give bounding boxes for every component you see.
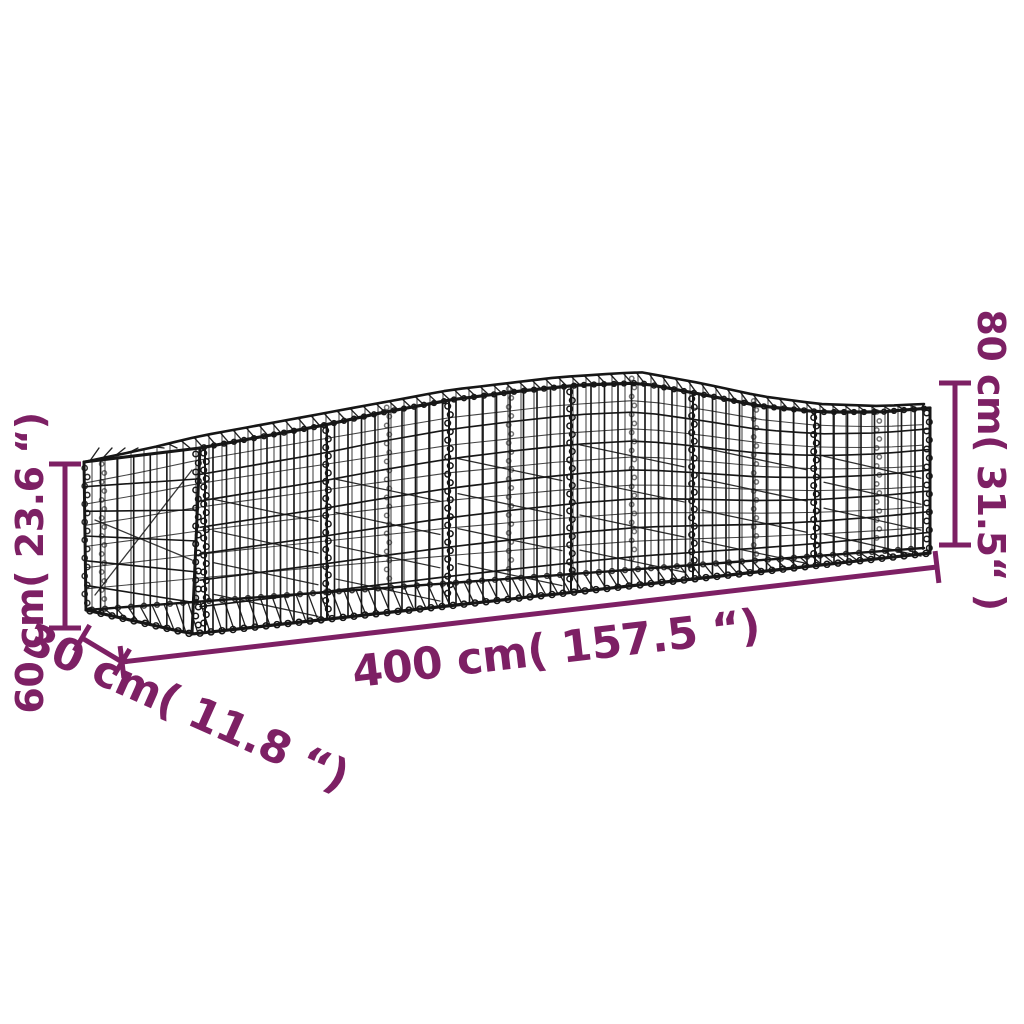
gabion-basket-wireframe xyxy=(82,372,932,636)
dimension-line-height-right xyxy=(939,383,971,545)
height-right-dimension-label: 80 cm( 31.5“ ) xyxy=(969,309,1013,610)
dimension-line-height-left xyxy=(49,464,81,628)
length-dimension-label: 400 cm( 157.5 “) xyxy=(349,600,762,698)
product-dimension-diagram: 60 cm( 23.6 “) 30 cm( 11.8 “) 400 cm( 15… xyxy=(0,0,1024,1024)
diagram-canvas: 60 cm( 23.6 “) 30 cm( 11.8 “) 400 cm( 15… xyxy=(0,0,1024,1024)
